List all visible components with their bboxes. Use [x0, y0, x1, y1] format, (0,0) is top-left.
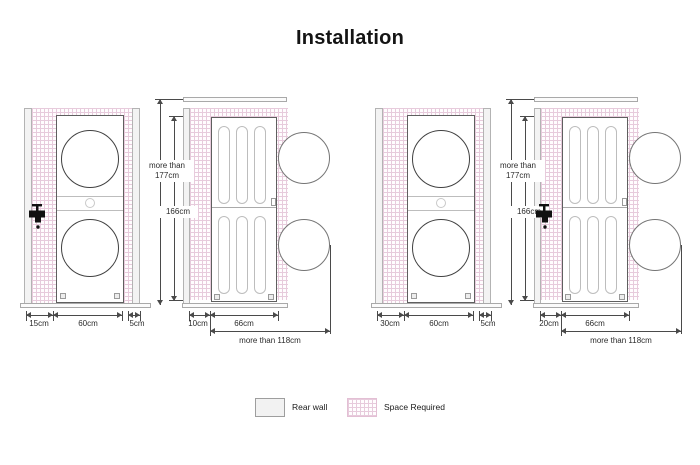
- vent-slot: [218, 216, 230, 294]
- upper-door-circle: [412, 130, 470, 188]
- control-knob: [436, 198, 446, 208]
- lower-door-circle: [412, 219, 470, 277]
- dim-label-unit-width: 60cm: [68, 319, 108, 329]
- dim-label-line2: 177cm: [491, 171, 545, 181]
- dim-label-unit-depth: 66cm: [224, 319, 264, 329]
- dim-tick: [278, 311, 279, 321]
- dim-label-ceiling-clearance: more than 177cm: [491, 160, 545, 182]
- leveling-foot: [214, 294, 220, 300]
- installation-diagram-page: Installation: [0, 0, 700, 465]
- dim-arrow-unit-depth: [210, 315, 278, 316]
- vent-slot: [569, 126, 581, 204]
- dim-arrow-front-clearance: [561, 331, 681, 332]
- dim-label-unit-depth: 66cm: [575, 319, 615, 329]
- leveling-foot: [60, 293, 66, 299]
- upper-door-circle: [61, 130, 119, 188]
- leveling-foot: [565, 294, 571, 300]
- control-knob: [85, 198, 95, 208]
- dim-tick: [629, 311, 630, 321]
- open-door-swing-upper: [278, 132, 330, 184]
- floor-line: [182, 303, 288, 308]
- door-clearance-extension-line: [330, 245, 331, 334]
- door-clearance-extension-line: [681, 245, 682, 334]
- faucet-icon: [533, 204, 555, 234]
- dim-label-front-clearance: more than 118cm: [220, 336, 320, 346]
- dim-arrow-ceiling-clearance: [511, 99, 512, 305]
- leveling-foot: [114, 293, 120, 299]
- right-wall: [483, 108, 491, 305]
- dim-label-line1: more than: [140, 161, 194, 171]
- vent-slot: [587, 216, 599, 294]
- leveling-foot: [268, 294, 274, 300]
- dim-label-ceiling-clearance: more than 177cm: [140, 160, 194, 182]
- leveling-foot: [619, 294, 625, 300]
- stacked-washer-dryer-front: [56, 115, 124, 303]
- vent-slot: [218, 126, 230, 204]
- dim-label-line2: 177cm: [140, 171, 194, 181]
- dim-arrow-rear-gap: [189, 315, 210, 316]
- vent-slot: [569, 216, 581, 294]
- floor-line: [371, 303, 502, 308]
- stacked-washer-dryer-side: [211, 117, 277, 302]
- vent-slot: [605, 126, 617, 204]
- leveling-foot: [465, 293, 471, 299]
- door-handle: [622, 198, 627, 206]
- legend-space-required-label: Space Required: [384, 402, 445, 413]
- dim-arrow-unit-depth: [561, 315, 629, 316]
- vent-slot: [254, 216, 266, 294]
- dim-label-right-gap: 5cm: [468, 319, 508, 329]
- dim-arrow-right-gap: [128, 315, 140, 316]
- dim-arrow-unit-width: [53, 315, 122, 316]
- legend-rear-wall-swatch: [255, 398, 285, 417]
- dim-arrow-rear-gap: [540, 315, 561, 316]
- dim-label-rear-gap: 10cm: [178, 319, 218, 329]
- ceiling-bar: [534, 97, 638, 102]
- stack-divider: [212, 207, 276, 208]
- leveling-foot: [411, 293, 417, 299]
- installation-option-rear-faucet: 30cm 60cm 5cm: [361, 0, 700, 360]
- stack-divider: [563, 207, 627, 208]
- dim-label-line1: more than: [491, 161, 545, 171]
- dim-arrow-front-clearance: [210, 331, 330, 332]
- vent-slot: [254, 126, 266, 204]
- legend-space-required-swatch: [347, 398, 377, 417]
- dim-arrow-ceiling-clearance: [160, 99, 161, 305]
- floor-line: [20, 303, 151, 308]
- floor-line: [533, 303, 639, 308]
- dim-label-rear-gap: 20cm: [529, 319, 569, 329]
- dim-label-unit-height: 166cm: [158, 206, 198, 218]
- ceiling-bar: [183, 97, 287, 102]
- dim-label-left-gap: 15cm: [19, 319, 59, 329]
- installation-option-side-faucet: 15cm 60cm 5cm more than 177cm: [10, 0, 355, 360]
- stacked-washer-dryer-side: [562, 117, 628, 302]
- vent-slot: [236, 126, 248, 204]
- door-handle: [271, 198, 276, 206]
- dim-arrow-left-gap: [377, 315, 404, 316]
- dim-arrow-right-gap: [479, 315, 491, 316]
- dim-arrow-unit-width: [404, 315, 473, 316]
- stacked-washer-dryer-front: [407, 115, 475, 303]
- legend-rear-wall-label: Rear wall: [292, 402, 327, 413]
- vent-slot: [587, 126, 599, 204]
- dim-label-right-gap: 5cm: [117, 319, 157, 329]
- faucet-icon: [26, 204, 48, 234]
- lower-door-circle: [61, 219, 119, 277]
- dim-label-front-clearance: more than 118cm: [571, 336, 671, 346]
- open-door-swing-lower: [629, 219, 681, 271]
- vent-slot: [605, 216, 617, 294]
- right-wall: [132, 108, 140, 305]
- dim-arrow-left-gap: [26, 315, 53, 316]
- vent-slot: [236, 216, 248, 294]
- left-wall: [375, 108, 383, 305]
- dim-label-left-gap: 30cm: [370, 319, 410, 329]
- open-door-swing-upper: [629, 132, 681, 184]
- dim-label-unit-width: 60cm: [419, 319, 459, 329]
- open-door-swing-lower: [278, 219, 330, 271]
